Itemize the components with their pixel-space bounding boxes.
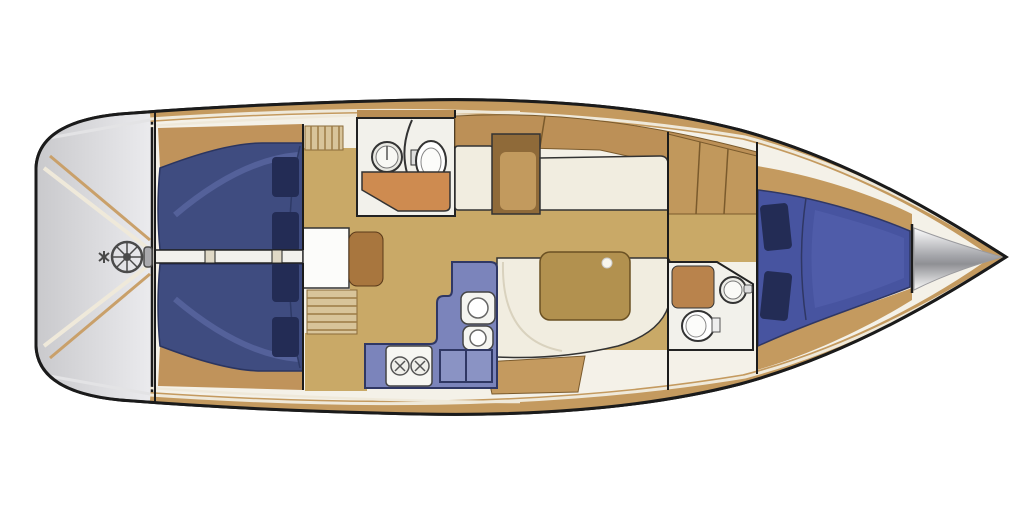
engine-box (349, 232, 383, 286)
yacht-floorplan-canvas (0, 0, 1024, 512)
salon-table (540, 252, 630, 320)
center-walkway (155, 250, 303, 263)
floorplan-svg (0, 0, 1024, 512)
pillow (760, 271, 793, 322)
pillow (272, 262, 299, 302)
companionway-steps-box (303, 228, 349, 288)
door-notch (205, 250, 215, 263)
forward-head (668, 262, 753, 350)
cabinet-seat (500, 152, 536, 210)
upper-long-settee (540, 156, 668, 210)
stove-icon (386, 346, 432, 386)
settee-seat (455, 146, 493, 210)
aft-head (357, 110, 455, 216)
pillow (272, 157, 299, 197)
cockpit-transom (36, 112, 152, 402)
pillow (272, 212, 299, 252)
vanity-counter (672, 266, 714, 308)
floor-slats-bottom (307, 290, 357, 334)
aft-cabin-starboard (158, 262, 303, 390)
door-notch (272, 250, 282, 263)
locker-slats-top (305, 126, 343, 150)
galley-sink-icon (461, 292, 495, 350)
fridge-lids (440, 350, 492, 382)
pillow (272, 317, 299, 357)
aft-cabin-port (158, 124, 303, 252)
pillow (760, 203, 793, 252)
settee-base-trim (485, 356, 585, 394)
bathroom-sink-icon (372, 142, 402, 172)
table-cup (602, 258, 612, 268)
